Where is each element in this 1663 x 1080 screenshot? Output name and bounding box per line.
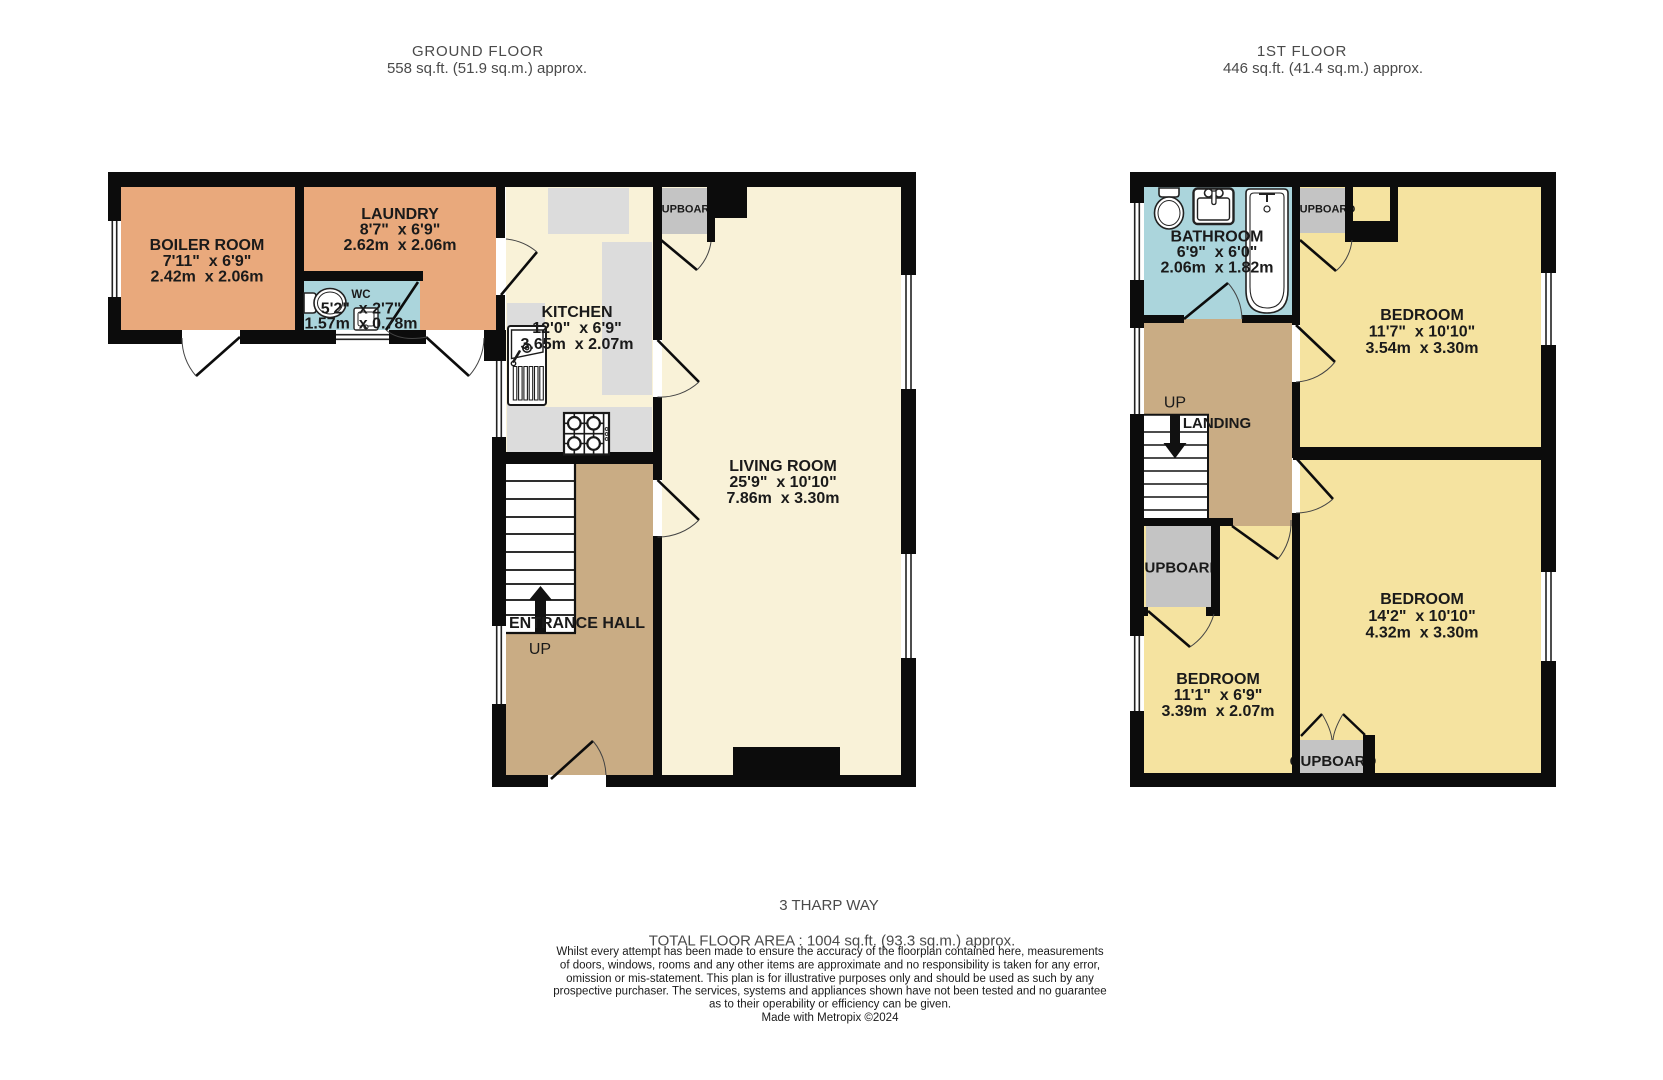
svg-text:3.54m x 3.30m: 3.54m x 3.30m [1366,340,1479,357]
svg-text:BOILER ROOM: BOILER ROOM [150,237,265,254]
svg-text:Made with Metropix ©2024: Made with Metropix ©2024 [762,1012,900,1024]
svg-text:UP: UP [529,641,551,658]
svg-text:3.65m x 2.07m: 3.65m x 2.07m [521,336,634,353]
svg-text:GROUND FLOOR: GROUND FLOOR [412,43,544,60]
svg-text:8'7" x 6'9": 8'7" x 6'9" [360,222,441,239]
svg-text:14'2" x 10'10": 14'2" x 10'10" [1368,608,1475,625]
svg-text:as to their operability or eff: as to their operability or efficiency ca… [709,999,951,1011]
svg-text:ENTRANCE HALL: ENTRANCE HALL [509,615,645,632]
svg-text:WC: WC [351,289,370,301]
svg-text:BEDROOM: BEDROOM [1380,307,1464,324]
svg-text:11'1" x 6'9": 11'1" x 6'9" [1174,687,1263,704]
svg-text:prospective purchaser. The ser: prospective purchaser. The services, sys… [553,986,1106,998]
svg-text:7.86m x 3.30m: 7.86m x 3.30m [727,490,840,507]
svg-text:6'9" x 6'0": 6'9" x 6'0" [1177,244,1258,261]
svg-text:3 THARP WAY: 3 THARP WAY [779,897,878,914]
svg-text:omission or mis-statement. Thi: omission or mis-statement. This plan is … [566,973,1094,985]
svg-text:BATHROOM: BATHROOM [1170,229,1263,246]
svg-text:BEDROOM: BEDROOM [1176,671,1260,688]
svg-text:25'9" x 10'10": 25'9" x 10'10" [729,474,836,491]
svg-text:UP: UP [1164,395,1186,412]
svg-text:3.39m x 2.07m: 3.39m x 2.07m [1162,703,1275,720]
svg-text:Whilst every attempt has been: Whilst every attempt has been made to en… [556,946,1103,958]
svg-text:2.62m x 2.06m: 2.62m x 2.06m [344,237,457,254]
svg-text:LAUNDRY: LAUNDRY [361,206,439,223]
svg-text:558 sq.ft. (51.9 sq.m.) approx: 558 sq.ft. (51.9 sq.m.) approx. [387,60,587,77]
svg-text:LANDING: LANDING [1183,415,1251,432]
svg-text:1ST FLOOR: 1ST FLOOR [1257,43,1347,60]
svg-text:11'7" x 10'10": 11'7" x 10'10" [1369,324,1475,341]
svg-text:KITCHEN: KITCHEN [541,304,612,321]
svg-text:4.32m x 3.30m: 4.32m x 3.30m [1366,625,1479,642]
svg-text:2.06m x 1.82m: 2.06m x 1.82m [1161,260,1274,277]
svg-text:BEDROOM: BEDROOM [1380,591,1464,608]
svg-text:1.57m x 0.78m: 1.57m x 0.78m [305,316,418,333]
svg-text:7'11" x 6'9": 7'11" x 6'9" [163,253,252,270]
svg-text:12'0" x 6'9": 12'0" x 6'9" [532,320,622,337]
svg-text:446 sq.ft. (41.4 sq.m.) approx: 446 sq.ft. (41.4 sq.m.) approx. [1223,60,1423,77]
svg-text:LIVING ROOM: LIVING ROOM [729,458,837,475]
svg-text:CUPBOARD: CUPBOARD [1134,560,1221,577]
svg-text:of doors, windows, rooms and a: of doors, windows, rooms and any other i… [560,960,1100,972]
svg-text:2.42m x 2.06m: 2.42m x 2.06m [151,269,264,286]
